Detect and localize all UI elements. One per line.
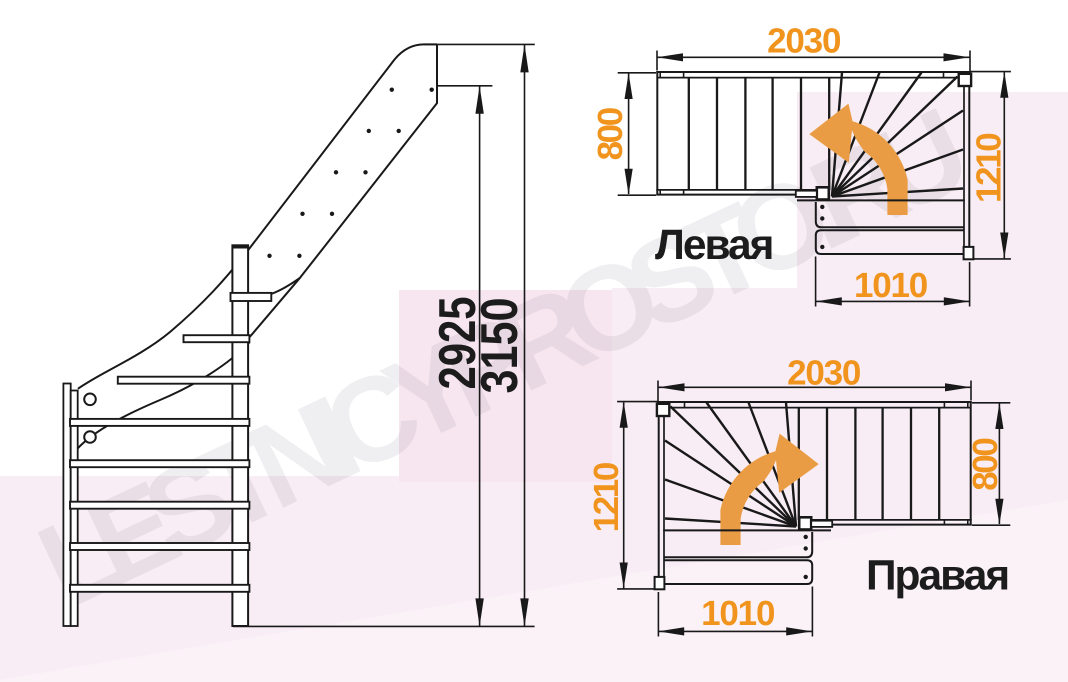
svg-text:1010: 1010 xyxy=(854,266,928,305)
svg-text:3150: 3150 xyxy=(471,298,529,394)
svg-text:1210: 1210 xyxy=(970,133,1009,203)
svg-text:1010: 1010 xyxy=(701,594,775,633)
svg-text:2030: 2030 xyxy=(787,354,861,393)
svg-text:800: 800 xyxy=(966,438,1005,491)
svg-text:1210: 1210 xyxy=(587,462,626,532)
svg-text:Правая: Правая xyxy=(866,553,1008,600)
svg-text:Левая: Левая xyxy=(655,222,772,269)
svg-text:800: 800 xyxy=(591,107,630,160)
svg-text:2030: 2030 xyxy=(767,22,841,61)
